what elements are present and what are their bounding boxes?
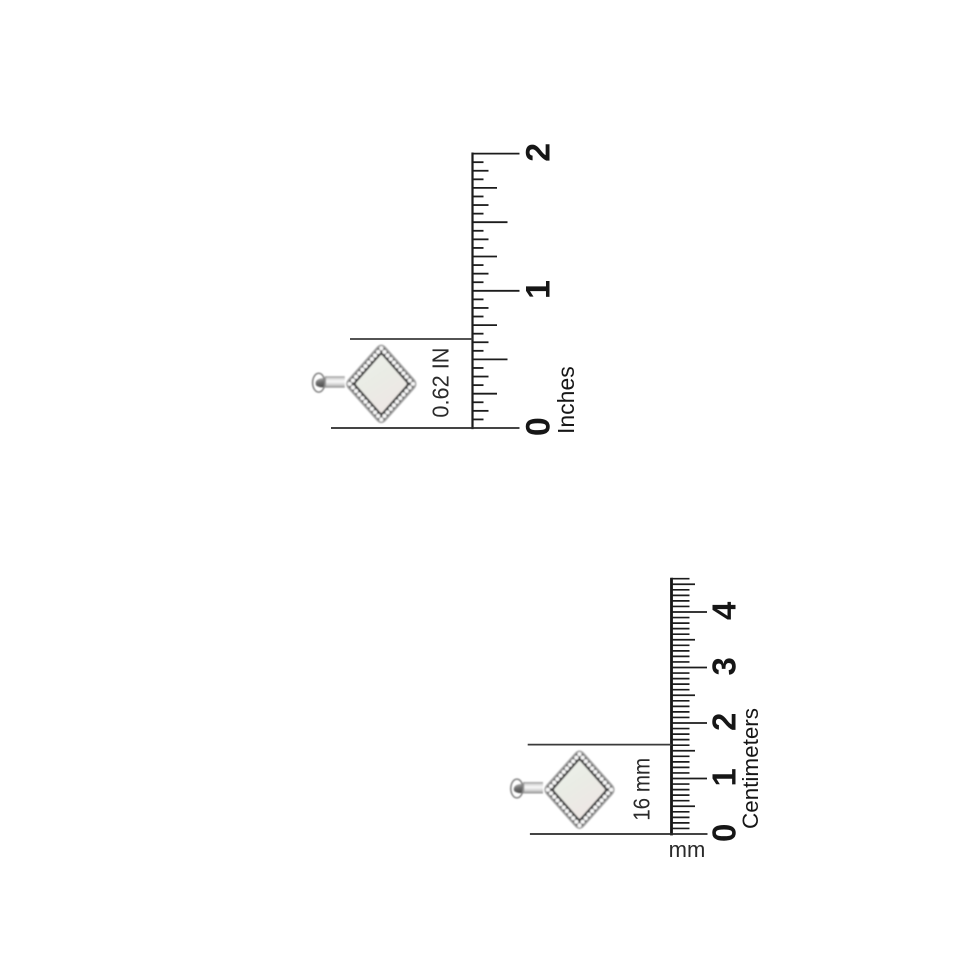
svg-text:2: 2: [706, 713, 743, 731]
svg-text:Centimeters: Centimeters: [738, 708, 763, 829]
svg-text:16 mm: 16 mm: [629, 758, 655, 821]
svg-text:0.62 IN: 0.62 IN: [428, 348, 454, 418]
svg-text:0: 0: [706, 824, 743, 842]
svg-text:4: 4: [706, 601, 743, 620]
svg-text:1: 1: [520, 280, 558, 299]
svg-text:2: 2: [520, 143, 558, 162]
svg-text:Inches: Inches: [553, 366, 579, 434]
svg-text:0: 0: [520, 417, 558, 436]
svg-text:1: 1: [706, 768, 743, 786]
svg-text:mm: mm: [669, 837, 706, 862]
svg-text:3: 3: [706, 657, 743, 675]
